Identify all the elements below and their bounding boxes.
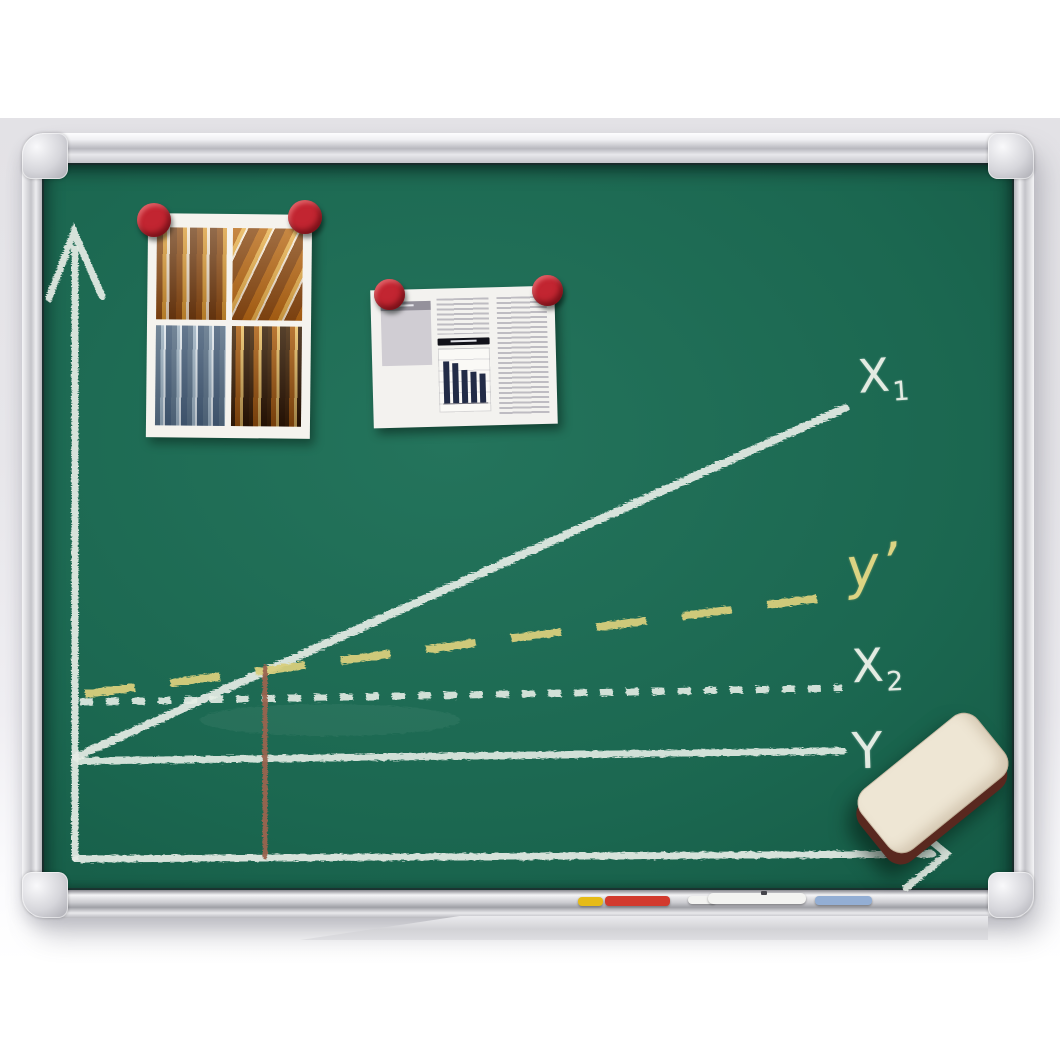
red-magnet — [137, 203, 171, 237]
bar-chart-axis — [443, 402, 488, 404]
red-magnet — [532, 275, 563, 306]
frame-corner-cap-top-left — [22, 133, 68, 179]
amber-bottles-photo — [156, 227, 227, 320]
pinned-photo-collage — [146, 213, 312, 439]
document-text-column-middle — [436, 297, 489, 334]
white-marker — [708, 893, 806, 904]
amber-tubes-photo — [232, 228, 303, 321]
blue-marker — [815, 896, 872, 905]
bar — [479, 373, 486, 402]
bar-chart-bars — [443, 353, 488, 403]
frame-rail-left — [22, 133, 42, 918]
label-x2: X2 — [850, 637, 906, 700]
document-image-placeholder — [381, 301, 433, 366]
blue-lab-glass-photo — [155, 325, 226, 426]
document-bar-chart — [438, 347, 492, 412]
frame-corner-cap-bottom-left — [22, 872, 68, 918]
marker-clip — [761, 891, 767, 895]
document-text-column-right — [496, 296, 549, 415]
bar — [443, 361, 450, 403]
label-y-prime: y’ — [842, 531, 904, 602]
bar — [461, 370, 468, 403]
label-x1: X1 — [856, 346, 913, 410]
document-chart-title-bar — [438, 337, 490, 345]
bar — [452, 363, 459, 403]
frame-rail-top — [22, 133, 1034, 163]
board-eraser — [848, 704, 1020, 864]
bar — [470, 372, 477, 403]
red-magnet — [288, 200, 322, 234]
frame-corner-cap-top-right — [988, 133, 1034, 179]
frame-corner-cap-bottom-right — [988, 872, 1034, 918]
yellow-marker — [578, 897, 603, 906]
red-marker — [605, 896, 670, 906]
frame-rail-bottom — [22, 890, 1034, 918]
photo-stage: X1 y’ X2 Y — [0, 0, 1060, 1060]
red-magnet — [374, 279, 405, 310]
amber-vials-photo — [231, 326, 302, 427]
